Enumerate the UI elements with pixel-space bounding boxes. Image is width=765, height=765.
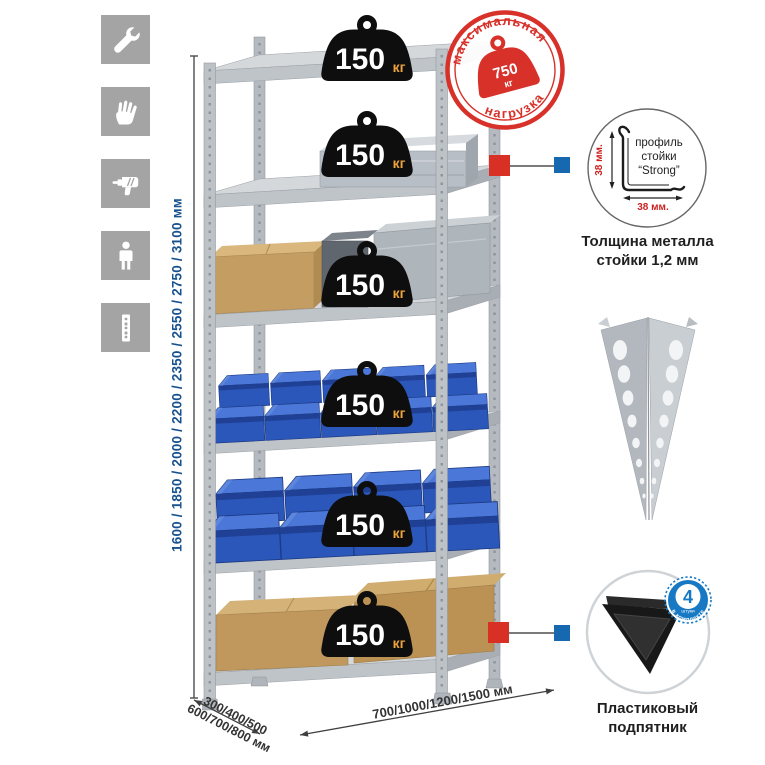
height-dimension-label: 1600 / 1850 / 2000 / 2200 / 2350 / 2550 … bbox=[170, 198, 185, 552]
product-infographic: 1600 / 1850 / 2000 / 2200 / 2350 / 2550 … bbox=[0, 0, 765, 765]
svg-text:штуки: штуки bbox=[681, 610, 695, 615]
foot-marker-red bbox=[488, 622, 509, 643]
load-badge-5: 150 кг bbox=[312, 478, 422, 548]
svg-text:кг: кг bbox=[393, 525, 406, 541]
steel-corner-post bbox=[597, 312, 699, 527]
count-badge: 4 штуки в комплекте bbox=[664, 576, 712, 624]
profile-caption-line2: стойки 1,2 мм bbox=[570, 252, 725, 271]
svg-text:38 мм.: 38 мм. bbox=[594, 144, 605, 176]
svg-text:150: 150 bbox=[335, 43, 385, 76]
svg-text:150: 150 bbox=[335, 509, 385, 542]
foot-marker-blue bbox=[554, 625, 570, 641]
svg-text:38 мм.: 38 мм. bbox=[637, 202, 669, 213]
svg-text:профиль: профиль bbox=[635, 137, 683, 149]
load-badge-2: 150 кг bbox=[312, 108, 422, 178]
load-badge-4: 150 кг bbox=[312, 358, 422, 428]
svg-text:150: 150 bbox=[335, 389, 385, 422]
svg-text:“Strong”: “Strong” bbox=[638, 165, 680, 177]
cardboard-box-small bbox=[210, 241, 326, 314]
svg-text:стойки: стойки bbox=[641, 151, 676, 163]
profile-callout: 38 мм. 38 мм. профиль стойки “Strong” bbox=[585, 106, 709, 230]
drill-icon bbox=[101, 159, 150, 208]
foot-caption-line2: подпятник bbox=[575, 719, 720, 738]
profile-marker-red bbox=[489, 155, 510, 176]
assembly-icons-column bbox=[101, 15, 150, 352]
foot-caption-line1: Пластиковый bbox=[575, 700, 720, 719]
profile-connector-line bbox=[505, 165, 558, 167]
svg-text:150: 150 bbox=[335, 619, 385, 652]
load-badge-6: 150 кг bbox=[312, 588, 422, 658]
svg-text:кг: кг bbox=[393, 285, 406, 301]
svg-text:150: 150 bbox=[335, 139, 385, 172]
svg-text:4: 4 bbox=[683, 587, 693, 607]
foot-caption: Пластиковый подпятник bbox=[575, 700, 720, 738]
load-badge-3: 150 кг bbox=[312, 238, 422, 308]
perforated-post-icon bbox=[101, 303, 150, 352]
load-badge-1: 150 кг bbox=[312, 12, 422, 82]
svg-text:150: 150 bbox=[335, 269, 385, 302]
gloves-icon bbox=[101, 87, 150, 136]
svg-text:кг: кг bbox=[393, 635, 406, 651]
wrench-icon bbox=[101, 15, 150, 64]
profile-marker-blue bbox=[554, 157, 570, 173]
svg-text:кг: кг bbox=[393, 405, 406, 421]
foot-connector-line bbox=[505, 632, 558, 634]
height-dimension-line bbox=[188, 52, 200, 702]
person-icon bbox=[101, 231, 150, 280]
profile-caption-line1: Толщина металла bbox=[570, 233, 725, 252]
svg-text:кг: кг bbox=[393, 155, 406, 171]
svg-text:кг: кг bbox=[393, 59, 406, 75]
profile-caption: Толщина металла стойки 1,2 мм bbox=[570, 233, 725, 271]
